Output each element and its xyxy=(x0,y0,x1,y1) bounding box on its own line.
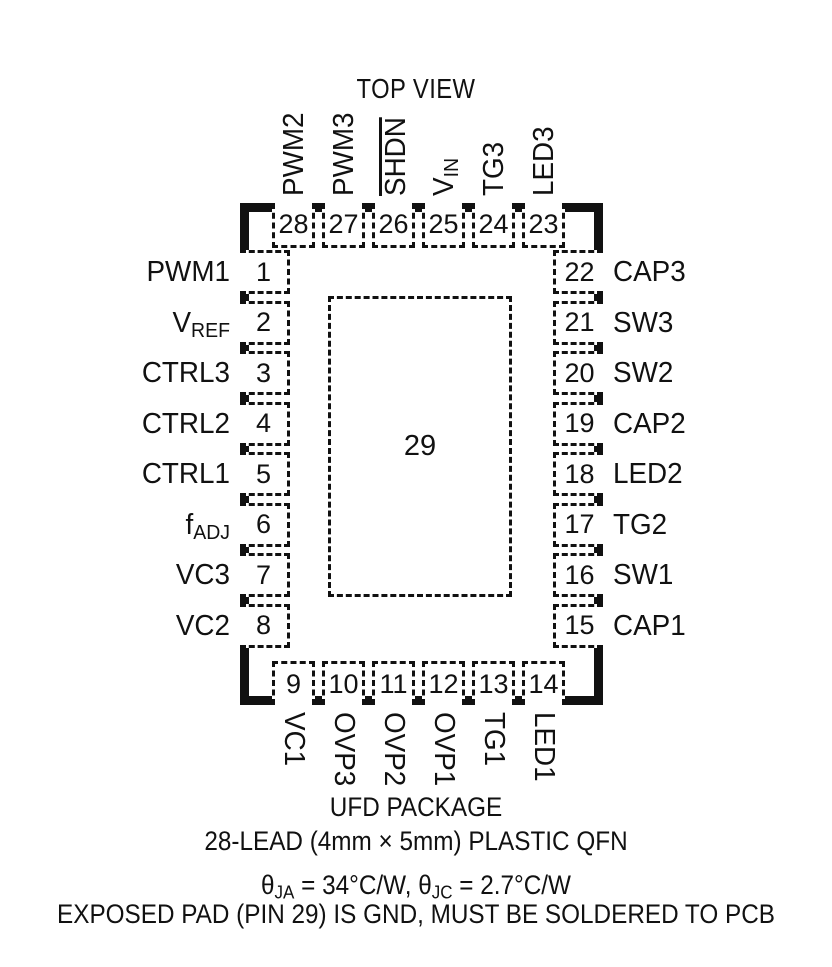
pin-label-24: TG3 xyxy=(479,142,509,196)
pin-pad-4: 4 xyxy=(240,402,290,446)
pin-number: 25 xyxy=(428,211,458,238)
pin-label-20: SW2 xyxy=(613,358,673,388)
text-segment: LED1 xyxy=(528,712,560,782)
pin-number: 14 xyxy=(528,671,558,698)
text-segment: PWM2 xyxy=(278,112,310,196)
text-segment: LED2 xyxy=(613,458,683,490)
pin-pad-13: 13 xyxy=(472,661,515,705)
pin-label-4: CTRL2 xyxy=(9,409,230,439)
pin-pad-21: 21 xyxy=(553,301,603,345)
text-segment: VC1 xyxy=(278,712,310,766)
text-segment: VC3 xyxy=(176,559,230,591)
text-segment: CTRL2 xyxy=(142,408,230,440)
pin-label-9: VC1 xyxy=(279,712,309,766)
text-segment: CTRL3 xyxy=(142,357,230,389)
text-segment: VC2 xyxy=(176,610,230,642)
pin-number: 6 xyxy=(256,511,271,538)
pin-pad-15: 15 xyxy=(553,604,603,648)
text-segment: PWM1 xyxy=(146,256,230,288)
text-segment: TG1 xyxy=(478,712,510,766)
pin-pad-25: 25 xyxy=(422,203,465,248)
text-segment: REF xyxy=(191,319,230,341)
text-segment: = 2.7°C/W xyxy=(453,870,571,900)
pin-label-26: SHDN xyxy=(379,117,412,196)
pin-pad-11: 11 xyxy=(372,661,415,705)
pin-label-14: LED1 xyxy=(529,712,559,782)
pin-label-21: SW3 xyxy=(613,308,673,338)
pin-label-12: OVP1 xyxy=(429,712,459,786)
package-type-caption: 28-LEAD (4mm × 5mm) PLASTIC QFN xyxy=(42,826,791,856)
text-segment: TG2 xyxy=(613,509,667,541)
pin-label-18: LED2 xyxy=(613,459,683,489)
package-name-caption: UFD PACKAGE xyxy=(42,792,791,822)
exposed-pad: 29 xyxy=(328,296,512,597)
pin-number: 27 xyxy=(328,211,358,238)
text-segment: CAP3 xyxy=(613,256,686,288)
pin-number: 7 xyxy=(256,562,271,589)
pin-label-5: CTRL1 xyxy=(9,459,230,489)
pin-pad-10: 10 xyxy=(322,661,365,705)
pin-pad-19: 19 xyxy=(553,402,603,446)
exposed-pad-number: 29 xyxy=(404,430,436,463)
pin-label-2: VREF xyxy=(9,308,230,346)
pin-number: 12 xyxy=(428,671,458,698)
pin-number: 5 xyxy=(256,461,271,488)
pin-number: 9 xyxy=(286,671,301,698)
pin-number: 2 xyxy=(256,309,271,336)
text-segment: = 34°C/W, θ xyxy=(294,870,431,900)
pin-pad-3: 3 xyxy=(240,351,290,395)
pin-pad-17: 17 xyxy=(553,503,603,547)
pin-label-28: PWM2 xyxy=(279,112,309,196)
pin-number: 8 xyxy=(256,612,271,639)
pin-number: 10 xyxy=(328,671,358,698)
pin-pad-23: 23 xyxy=(522,203,565,248)
pin-number: 16 xyxy=(564,562,594,589)
pin-pad-18: 18 xyxy=(553,452,603,496)
text-segment: SW1 xyxy=(613,559,673,591)
pin-number: 11 xyxy=(379,671,407,698)
diagram-title: TOP VIEW xyxy=(62,74,769,104)
pin-pad-6: 6 xyxy=(240,503,290,547)
pin-number: 17 xyxy=(564,511,594,538)
pin-pad-14: 14 xyxy=(522,661,565,705)
pin-pad-24: 24 xyxy=(472,203,515,248)
pin-label-1: PWM1 xyxy=(9,257,230,287)
pin-label-8: VC2 xyxy=(9,611,230,641)
pin-number: 21 xyxy=(564,309,594,336)
pin-label-22: CAP3 xyxy=(613,257,686,287)
pin-label-17: TG2 xyxy=(613,510,667,540)
pinout-diagram: TOP VIEW 2827262524231234567822212019181… xyxy=(0,0,832,967)
text-segment: f xyxy=(185,509,193,541)
pin-pad-1: 1 xyxy=(240,250,290,294)
pin-number: 3 xyxy=(256,360,271,387)
pin-label-25: VIN xyxy=(429,158,467,196)
pin-label-11: OVP2 xyxy=(379,712,409,786)
text-segment: TG3 xyxy=(478,142,510,196)
text-segment: OVP3 xyxy=(328,712,360,786)
text-segment: EXPOSED PAD (PIN 29) IS GND, MUST BE SOL… xyxy=(57,899,775,929)
pin-label-7: VC3 xyxy=(9,560,230,590)
pin-label-27: PWM3 xyxy=(329,112,359,196)
text-segment: SW3 xyxy=(613,307,673,339)
text-segment: CTRL1 xyxy=(142,458,230,490)
text-segment: IN xyxy=(440,158,462,177)
pin-pad-26: 26 xyxy=(372,203,415,248)
pin-label-23: LED3 xyxy=(529,126,559,196)
text-segment: SHDN xyxy=(379,117,412,196)
pin-label-6: fADJ xyxy=(9,510,230,548)
pin-pad-22: 22 xyxy=(553,250,603,294)
text-segment: CAP2 xyxy=(613,408,686,440)
pin-pad-12: 12 xyxy=(422,661,465,705)
pin-label-19: CAP2 xyxy=(613,409,686,439)
text-segment: LED3 xyxy=(528,126,560,196)
pin-number: 18 xyxy=(564,461,594,488)
text-segment: PWM3 xyxy=(328,112,360,196)
text-segment: OVP1 xyxy=(428,712,460,786)
text-segment: V xyxy=(172,307,191,339)
pin-number: 4 xyxy=(256,410,271,437)
exposed-pad-note: EXPOSED PAD (PIN 29) IS GND, MUST BE SOL… xyxy=(42,899,791,929)
pin-number: 22 xyxy=(564,259,594,286)
pin-number: 15 xyxy=(564,612,594,639)
text-segment: CAP1 xyxy=(613,610,686,642)
text-segment: ADJ xyxy=(193,521,230,543)
pin-pad-2: 2 xyxy=(240,301,290,345)
pin-number: 24 xyxy=(478,211,508,238)
pin-label-10: OVP3 xyxy=(329,712,359,786)
pin-number: 1 xyxy=(256,259,271,286)
pin-label-13: TG1 xyxy=(479,712,509,766)
pin-pad-27: 27 xyxy=(322,203,365,248)
pin-label-15: CAP1 xyxy=(613,611,686,641)
pin-number: 20 xyxy=(564,360,594,387)
text-segment: θ xyxy=(261,870,275,900)
pin-number: 23 xyxy=(528,211,558,238)
pin-pad-16: 16 xyxy=(553,553,603,597)
pin-number: 19 xyxy=(564,410,594,437)
text-segment: OVP2 xyxy=(378,712,410,786)
pin-label-16: SW1 xyxy=(613,560,673,590)
text-segment: V xyxy=(428,177,460,196)
pin-number: 26 xyxy=(378,211,408,238)
pin-pad-7: 7 xyxy=(240,553,290,597)
pin-pad-5: 5 xyxy=(240,452,290,496)
pin-pad-8: 8 xyxy=(240,604,290,648)
pin-pad-28: 28 xyxy=(272,203,315,248)
pin-number: 28 xyxy=(278,211,308,238)
pin-number: 13 xyxy=(478,671,508,698)
pin-pad-9: 9 xyxy=(272,661,315,705)
text-segment: SW2 xyxy=(613,357,673,389)
pin-pad-20: 20 xyxy=(553,351,603,395)
pin-label-3: CTRL3 xyxy=(9,358,230,388)
